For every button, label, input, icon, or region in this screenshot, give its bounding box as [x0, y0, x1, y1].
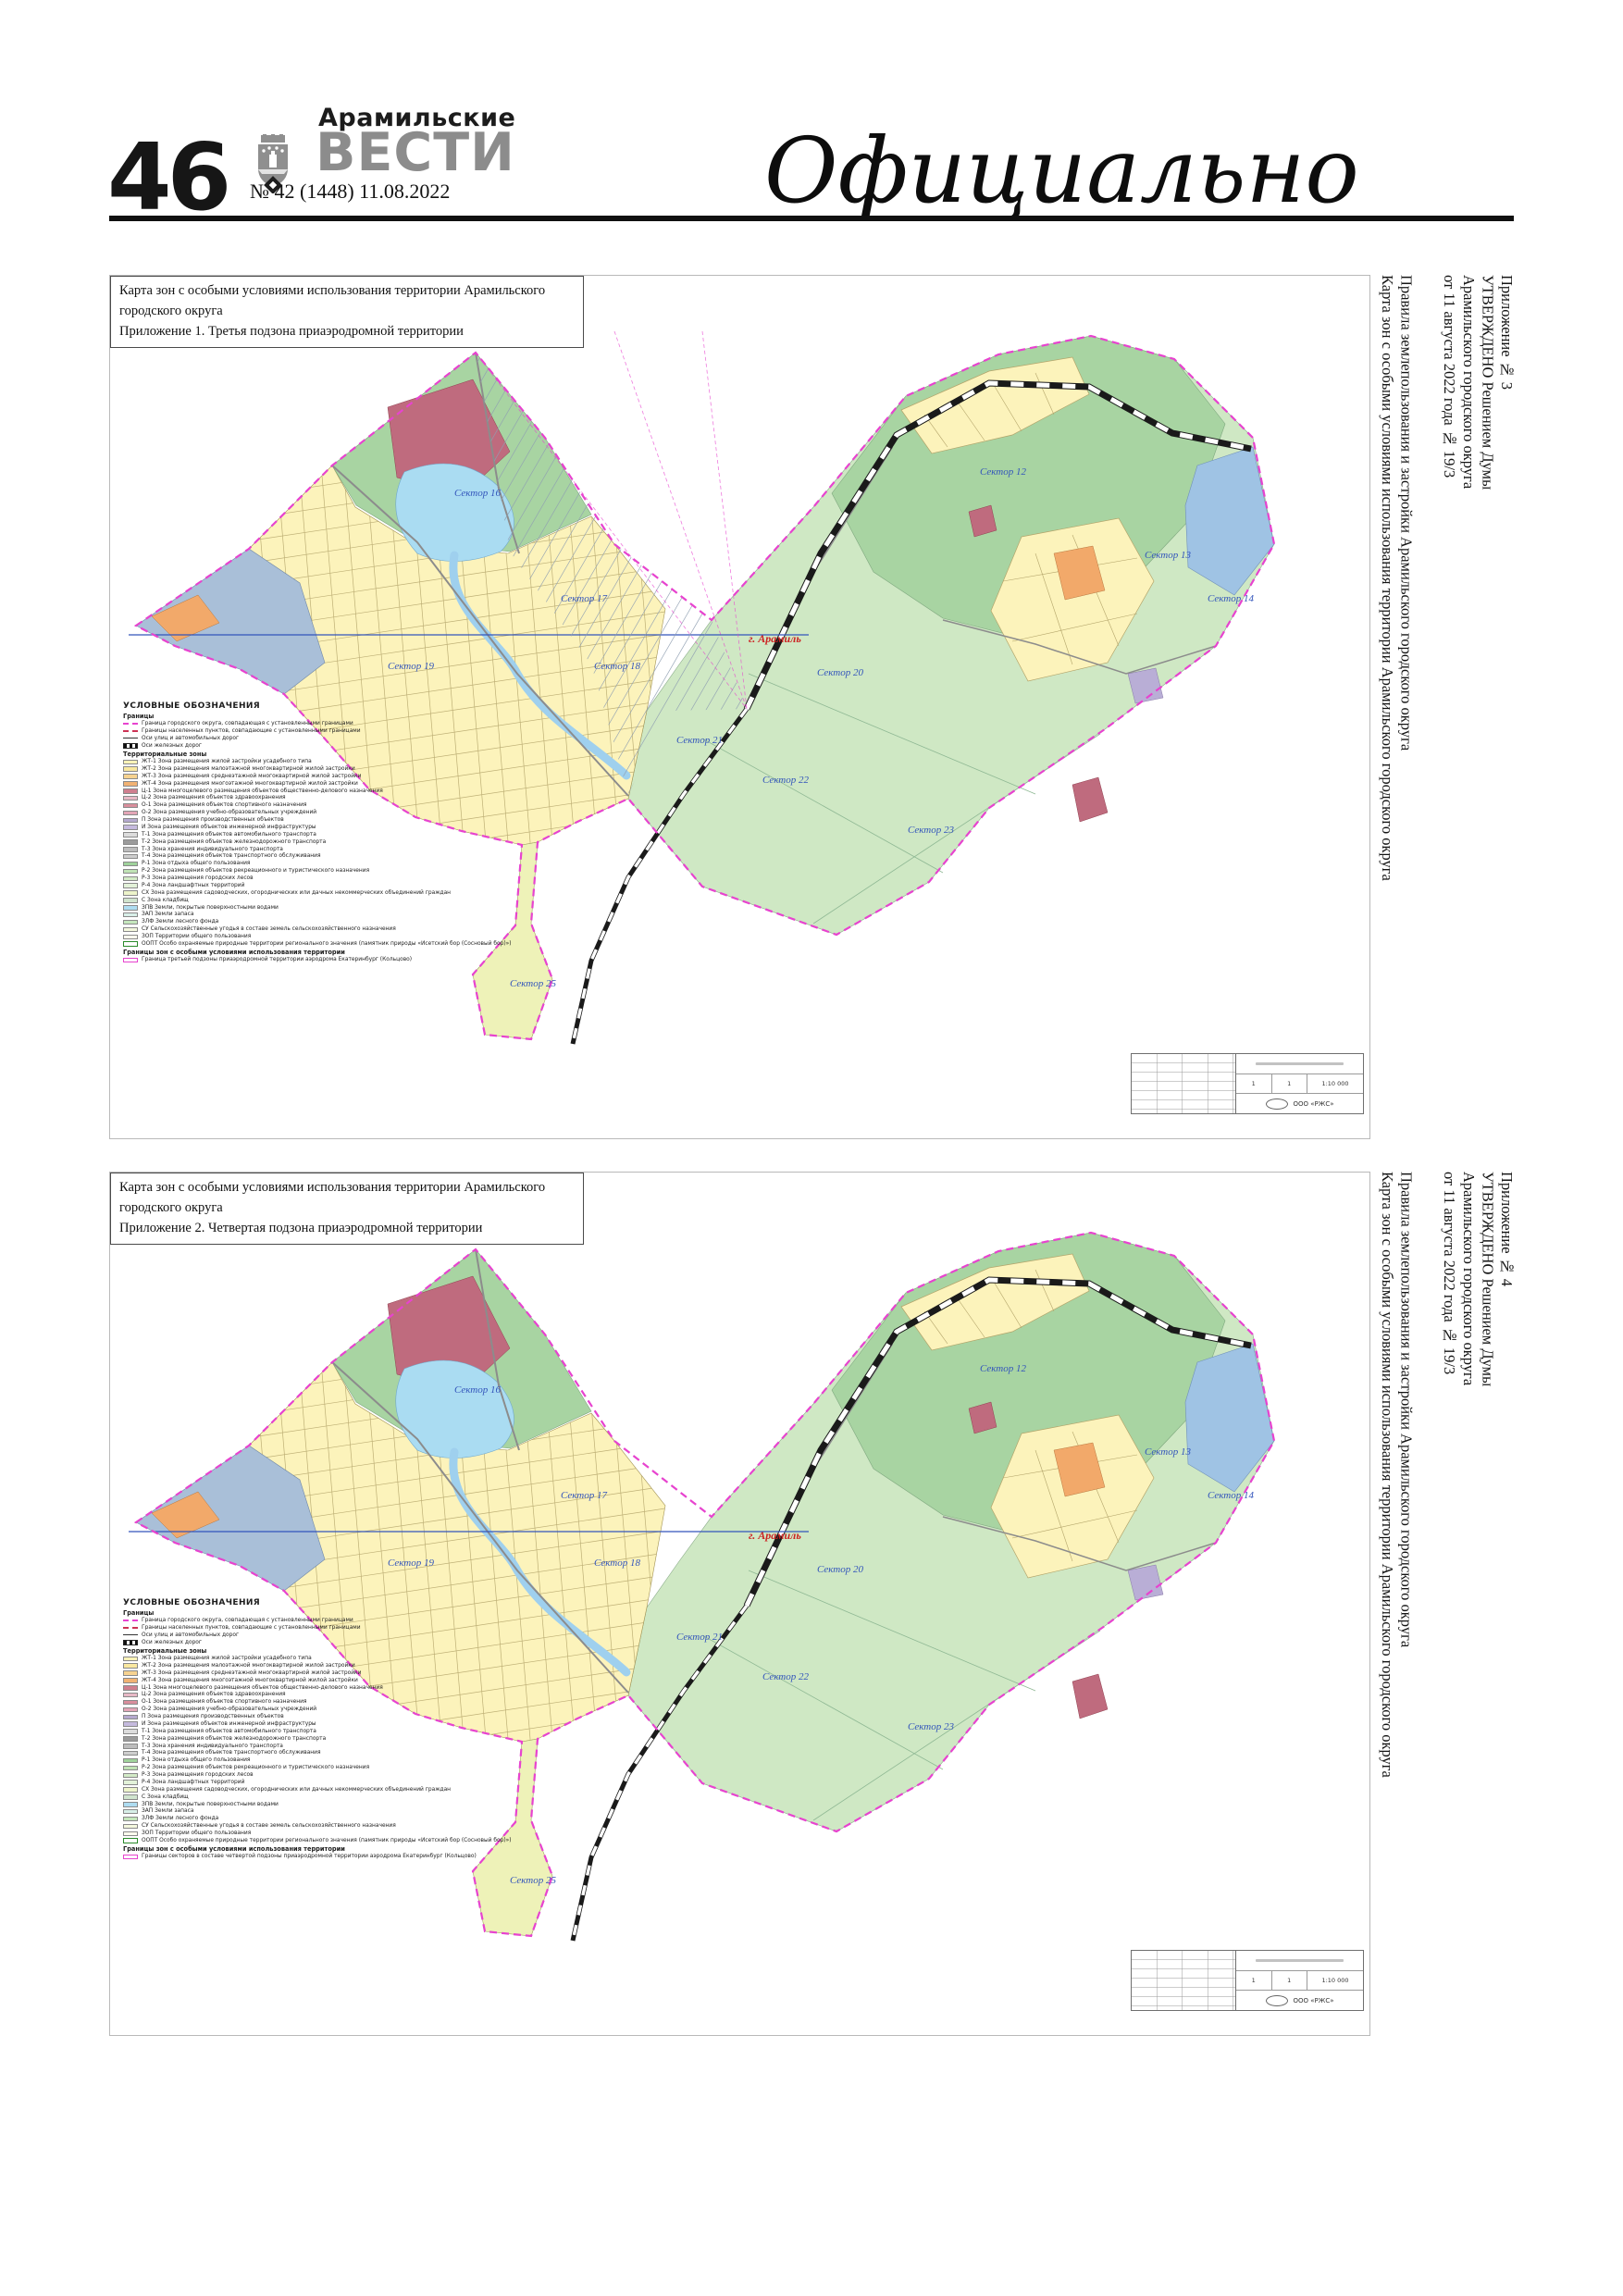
stamp-signature-grid: [1132, 1054, 1236, 1113]
legend-zone-swatch: [123, 1657, 138, 1662]
sector-label: Сектор 14: [1208, 1490, 1254, 1501]
legend-zone-swatch: [123, 1751, 138, 1756]
legend-row: ЗЛФ Земли лесного фонда: [123, 919, 521, 925]
sector-label: Сектор 25: [510, 1875, 556, 1886]
sector-label: Сектор 13: [1145, 550, 1191, 561]
legend-zone-swatch: [123, 774, 138, 779]
stamp-cell-2: 1: [1272, 1074, 1308, 1094]
city-label: г. Арамиль: [749, 1529, 801, 1542]
legend-row: УСЛОВНЫЕ ОБОЗНАЧЕНИЯ: [123, 701, 521, 711]
legend-zone-swatch: [123, 766, 138, 772]
sector-label: Сектор 18: [594, 1558, 640, 1569]
legend-row: С Зона кладбищ: [123, 1794, 521, 1800]
legend-zone-swatch: [123, 920, 138, 925]
sector-label: Сектор 20: [817, 667, 863, 678]
legend-subzone-swatch: [123, 1855, 138, 1860]
map1-title-box: Карта зон с особыми условиями использова…: [110, 276, 584, 348]
sector-label: Сектор 22: [762, 1671, 809, 1682]
legend-row: Т-3 Зона хранения индивидуального трансп…: [123, 1744, 521, 1749]
legend-row: ООПТ Особо охраняемые природные территор…: [123, 941, 521, 947]
side-note-line: Арамильского городского округа: [1458, 1172, 1478, 2036]
legend-zone-swatch: [123, 905, 138, 911]
legend-line-swatch: [123, 1620, 138, 1621]
stamp-cell-1: 1: [1236, 1971, 1272, 1991]
legend-row: Оси улиц и автомобильных дорог: [123, 1632, 521, 1638]
legend-row: О-1 Зона размещения объектов спортивного…: [123, 1699, 521, 1705]
side-note-line: УТВЕРЖДЕНО Решением Думы: [1478, 275, 1497, 1139]
legend-row: Т-4 Зона размещения объектов транспортно…: [123, 1750, 521, 1756]
issue-number-date: № 42 (1448) 11.08.2022: [250, 180, 450, 204]
legend-zone-swatch: [123, 1736, 138, 1742]
map-figure-1: Сектор 16Сектор 19Сектор 17Сектор 18Сект…: [109, 275, 1370, 1139]
legend-row: ЗАП Земли запаса: [123, 912, 521, 917]
legend-zone-swatch: [123, 862, 138, 867]
legend-zone-swatch: [123, 1729, 138, 1734]
legend-zone-swatch: [123, 869, 138, 875]
legend-row: ЖТ-2 Зона размещения малоэтажной многокв…: [123, 766, 521, 772]
sector-label: Сектор 19: [388, 1558, 434, 1569]
legend-zone-swatch: [123, 890, 138, 896]
legend-row: СУ Сельскохозяйственные угодья в составе…: [123, 926, 521, 932]
legend-row: Граница городского округа, совпадающая с…: [123, 1618, 521, 1623]
legend-row: ЖТ-3 Зона размещения среднеэтажной много…: [123, 1670, 521, 1676]
legend-zone-swatch: [123, 839, 138, 845]
sector-label: Сектор 16: [454, 1384, 501, 1396]
legend-row: Т-1 Зона размещения объектов автомобильн…: [123, 832, 521, 838]
legend-zone-swatch: [123, 876, 138, 882]
legend-zone-swatch: [123, 847, 138, 852]
sector-label: Сектор 23: [908, 825, 954, 836]
sector-label: Сектор 19: [388, 661, 434, 672]
map2-title-line2: Приложение 2. Четвертая подзона приаэрод…: [119, 1219, 575, 1239]
legend-row: Ц-1 Зона многоцелевого размещения объект…: [123, 788, 521, 794]
legend-line-swatch: [123, 738, 138, 738]
legend-zone-swatch: [123, 1700, 138, 1706]
legend-line-swatch: [123, 1627, 138, 1629]
sector-label: Сектор 17: [561, 593, 607, 604]
legend-row: Границы зон с особыми условиями использо…: [123, 1845, 521, 1853]
stamp-logo-oval: [1266, 1098, 1288, 1110]
map1-title-line2: Приложение 1. Третья подзона приаэродром…: [119, 322, 575, 342]
legend-zone-swatch: [123, 1744, 138, 1749]
legend-row: Ц-2 Зона размещения объектов здравоохран…: [123, 795, 521, 800]
sector-label: Сектор 16: [454, 488, 501, 499]
legend-row: УСЛОВНЫЕ ОБОЗНАЧЕНИЯ: [123, 1598, 521, 1607]
section-title: Официально: [764, 118, 1338, 223]
legend-row: ЗАП Земли запаса: [123, 1808, 521, 1814]
legend-zone-swatch: [123, 1758, 138, 1764]
stamp-cell-1: 1: [1236, 1074, 1272, 1094]
legend-row: П Зона размещения производственных объек…: [123, 817, 521, 823]
sector-label: Сектор 14: [1208, 593, 1254, 604]
map2-title-block-stamp: 1 1 1:10 000 ООО «РЖС»: [1131, 1950, 1364, 2011]
legend-zone-swatch: [123, 927, 138, 933]
map2-title-box: Карта зон с особыми условиями использова…: [110, 1173, 584, 1245]
legend-row: Р-4 Зона ландшафтных территорий: [123, 883, 521, 888]
side-note-line: Карта зон с особыми условиями использова…: [1377, 1172, 1396, 2036]
legend-row: ЗЛФ Земли лесного фонда: [123, 1816, 521, 1821]
legend-zone-swatch: [123, 898, 138, 903]
legend-row: СУ Сельскохозяйственные угодья в составе…: [123, 1823, 521, 1829]
legend-row: СХ Зона размещения садоводческих, огород…: [123, 1787, 521, 1793]
legend-zone-swatch: [123, 1809, 138, 1815]
stamp-cell-2: 1: [1272, 1971, 1308, 1991]
legend-zone-swatch: [123, 1670, 138, 1676]
newspaper-page: 46 Арамильские ВЕСТИ № 42 (1448) 11.08.2…: [0, 0, 1623, 2296]
stamp-scale: 1:10 000: [1307, 1971, 1363, 1991]
legend-zone-swatch: [123, 1685, 138, 1691]
legend-row: Границы секторов в составе четвертой под…: [123, 1854, 521, 1859]
legend-zone-swatch: [123, 803, 138, 809]
map2-title-line1: Карта зон с особыми условиями использова…: [119, 1178, 575, 1219]
legend-row: Р-4 Зона ландшафтных территорий: [123, 1780, 521, 1785]
map-figure-2: Сектор 16Сектор 19Сектор 17Сектор 18Сект…: [109, 1172, 1370, 2036]
sector-label: Сектор 12: [980, 1363, 1026, 1374]
legend-zone-swatch: [123, 811, 138, 816]
page-number: 46: [107, 137, 227, 218]
legend-zone-swatch: [123, 796, 138, 801]
legend-row: Территориальные зоны: [123, 751, 521, 758]
legend-row: Р-2 Зона размещения объектов рекреационн…: [123, 868, 521, 874]
legend-row: О-2 Зона размещения учебно-образовательн…: [123, 1706, 521, 1712]
map2-legend: УСЛОВНЫЕ ОБОЗНАЧЕНИЯГраницыГраница город…: [123, 1598, 521, 1861]
legend-row: И Зона размещения объектов инженерной ин…: [123, 1721, 521, 1727]
legend-row: Р-2 Зона размещения объектов рекреационн…: [123, 1765, 521, 1770]
legend-row: Оси железных дорог: [123, 743, 521, 749]
legend-row: Граница третьей подзоны приаэродромной т…: [123, 957, 521, 962]
side-note-line: Арамильского городского округа: [1458, 275, 1478, 1139]
legend-row: Ц-2 Зона размещения объектов здравоохран…: [123, 1692, 521, 1697]
legend-row: Границы зон с особыми условиями использо…: [123, 949, 521, 956]
legend-zone-swatch: [123, 1838, 138, 1843]
legend-zone-swatch: [123, 1780, 138, 1785]
side-note-line: УТВЕРЖДЕНО Решением Думы: [1478, 1172, 1497, 2036]
legend-row: Р-3 Зона размещения городских лесов: [123, 875, 521, 881]
side-note-line: Приложение № 4: [1496, 1172, 1516, 2036]
legend-row: Т-4 Зона размещения объектов транспортно…: [123, 853, 521, 859]
stamp-signature-grid: [1132, 1951, 1236, 2010]
sector-label: Сектор 20: [817, 1564, 863, 1575]
legend-row: ЖТ-4 Зона размещения многоэтажной многок…: [123, 1678, 521, 1683]
map1-side-annotation: Приложение № 3УТВЕРЖДЕНО Решением ДумыАр…: [1375, 275, 1516, 1139]
legend-row: СХ Зона размещения садоводческих, огород…: [123, 890, 521, 896]
legend-zone-swatch: [123, 1802, 138, 1807]
legend-line-swatch: [123, 743, 138, 749]
stamp-organization: ООО «РЖС»: [1294, 1997, 1334, 2004]
legend-row: О-2 Зона размещения учебно-образовательн…: [123, 810, 521, 815]
legend-zone-swatch: [123, 832, 138, 838]
side-note-line: Карта зон с особыми условиями использова…: [1377, 275, 1396, 1139]
legend-zone-swatch: [123, 1824, 138, 1830]
legend-row: Т-1 Зона размещения объектов автомобильн…: [123, 1729, 521, 1734]
city-label: г. Арамиль: [749, 632, 801, 645]
legend-row: О-1 Зона размещения объектов спортивного…: [123, 802, 521, 808]
map1-legend: УСЛОВНЫЕ ОБОЗНАЧЕНИЯГраницыГраница город…: [123, 701, 521, 964]
legend-row: Т-2 Зона размещения объектов железнодоро…: [123, 839, 521, 845]
legend-subzone-swatch: [123, 958, 138, 963]
legend-zone-swatch: [123, 1831, 138, 1837]
legend-line-swatch: [123, 1640, 138, 1645]
legend-row: Границы: [123, 713, 521, 720]
masthead-name-main: ВЕСТИ: [316, 122, 515, 183]
legend-line-swatch: [123, 1634, 138, 1635]
legend-zone-swatch: [123, 1721, 138, 1727]
legend-row: ЗПВ Земли, покрытые поверхностными водам…: [123, 1802, 521, 1807]
legend-row: Т-2 Зона размещения объектов железнодоро…: [123, 1736, 521, 1742]
legend-zone-swatch: [123, 760, 138, 765]
legend-row: ЖТ-1 Зона размещения жилой застройки уса…: [123, 1656, 521, 1661]
legend-row: Границы населенных пунктов, совпадающие …: [123, 1625, 521, 1631]
side-note-line: Приложение № 3: [1496, 275, 1516, 1139]
legend-row: Р-1 Зона отдыха общего пользования: [123, 1757, 521, 1763]
sector-label: Сектор 25: [510, 978, 556, 989]
map2-side-annotation: Приложение № 4УТВЕРЖДЕНО Решением ДумыАр…: [1375, 1172, 1516, 2036]
legend-row: И Зона размещения объектов инженерной ин…: [123, 825, 521, 830]
legend-zone-swatch: [123, 1715, 138, 1720]
legend-zone-swatch: [123, 1663, 138, 1669]
sector-label: Сектор 23: [908, 1721, 954, 1732]
legend-zone-swatch: [123, 935, 138, 940]
legend-row: ЗОП Территории общего пользования: [123, 1831, 521, 1836]
header-rule: [109, 216, 1514, 221]
legend-zone-swatch: [123, 883, 138, 888]
sector-label: Сектор 21: [676, 1632, 723, 1643]
legend-zone-swatch: [123, 1766, 138, 1771]
stamp-logo-oval: [1266, 1995, 1288, 2006]
legend-row: Оси железных дорог: [123, 1640, 521, 1645]
map1-title-line1: Карта зон с особыми условиями использова…: [119, 281, 575, 322]
legend-row: ЖТ-3 Зона размещения среднеэтажной много…: [123, 774, 521, 779]
legend-row: П Зона размещения производственных объек…: [123, 1714, 521, 1719]
legend-zone-swatch: [123, 912, 138, 918]
legend-row: ЖТ-1 Зона размещения жилой застройки уса…: [123, 759, 521, 764]
legend-zone-swatch: [123, 1693, 138, 1698]
legend-row: Т-3 Зона хранения индивидуального трансп…: [123, 847, 521, 852]
legend-zone-swatch: [123, 818, 138, 824]
legend-zone-swatch: [123, 788, 138, 794]
sector-label: Сектор 21: [676, 735, 723, 746]
side-note-line: от 11 августа 2022 года № 19/3: [1440, 1172, 1459, 2036]
legend-row: Территориальные зоны: [123, 1647, 521, 1655]
legend-zone-swatch: [123, 1678, 138, 1683]
side-note-line: Правила землепользования и застройки Ара…: [1396, 275, 1416, 1139]
legend-zone-swatch: [123, 854, 138, 860]
sector-label: Сектор 22: [762, 775, 809, 786]
legend-zone-swatch: [123, 941, 138, 947]
legend-row: ЖТ-4 Зона размещения многоэтажной многок…: [123, 781, 521, 787]
legend-line-swatch: [123, 723, 138, 725]
sector-label: Сектор 13: [1145, 1446, 1191, 1458]
legend-zone-swatch: [123, 1794, 138, 1800]
side-note-line: от 11 августа 2022 года № 19/3: [1440, 275, 1459, 1139]
legend-zone-swatch: [123, 825, 138, 830]
legend-row: ЗОП Территории общего пользования: [123, 934, 521, 939]
legend-row: Р-3 Зона размещения городских лесов: [123, 1772, 521, 1778]
legend-zone-swatch: [123, 1707, 138, 1713]
stamp-organization: ООО «РЖС»: [1294, 1100, 1334, 1108]
legend-row: ЗПВ Земли, покрытые поверхностными водам…: [123, 905, 521, 911]
legend-row: Р-1 Зона отдыха общего пользования: [123, 861, 521, 866]
map1-title-block-stamp: 1 1 1:10 000 ООО «РЖС»: [1131, 1053, 1364, 1114]
legend-row: Ц-1 Зона многоцелевого размещения объект…: [123, 1685, 521, 1691]
legend-row: ЖТ-2 Зона размещения малоэтажной многокв…: [123, 1663, 521, 1669]
sector-label: Сектор 12: [980, 466, 1026, 478]
stamp-scale: 1:10 000: [1307, 1074, 1363, 1094]
sector-label: Сектор 17: [561, 1490, 607, 1501]
legend-row: ООПТ Особо охраняемые природные территор…: [123, 1838, 521, 1843]
legend-row: Граница городского округа, совпадающая с…: [123, 721, 521, 726]
legend-row: Границы: [123, 1609, 521, 1617]
legend-zone-swatch: [123, 781, 138, 787]
legend-zone-swatch: [123, 1773, 138, 1779]
legend-row: С Зона кладбищ: [123, 898, 521, 903]
legend-row: Границы населенных пунктов, совпадающие …: [123, 728, 521, 734]
legend-line-swatch: [123, 730, 138, 732]
side-note-line: Правила землепользования и застройки Ара…: [1396, 1172, 1416, 2036]
sector-label: Сектор 18: [594, 661, 640, 672]
legend-zone-swatch: [123, 1817, 138, 1822]
legend-row: Оси улиц и автомобильных дорог: [123, 736, 521, 741]
legend-zone-swatch: [123, 1787, 138, 1793]
